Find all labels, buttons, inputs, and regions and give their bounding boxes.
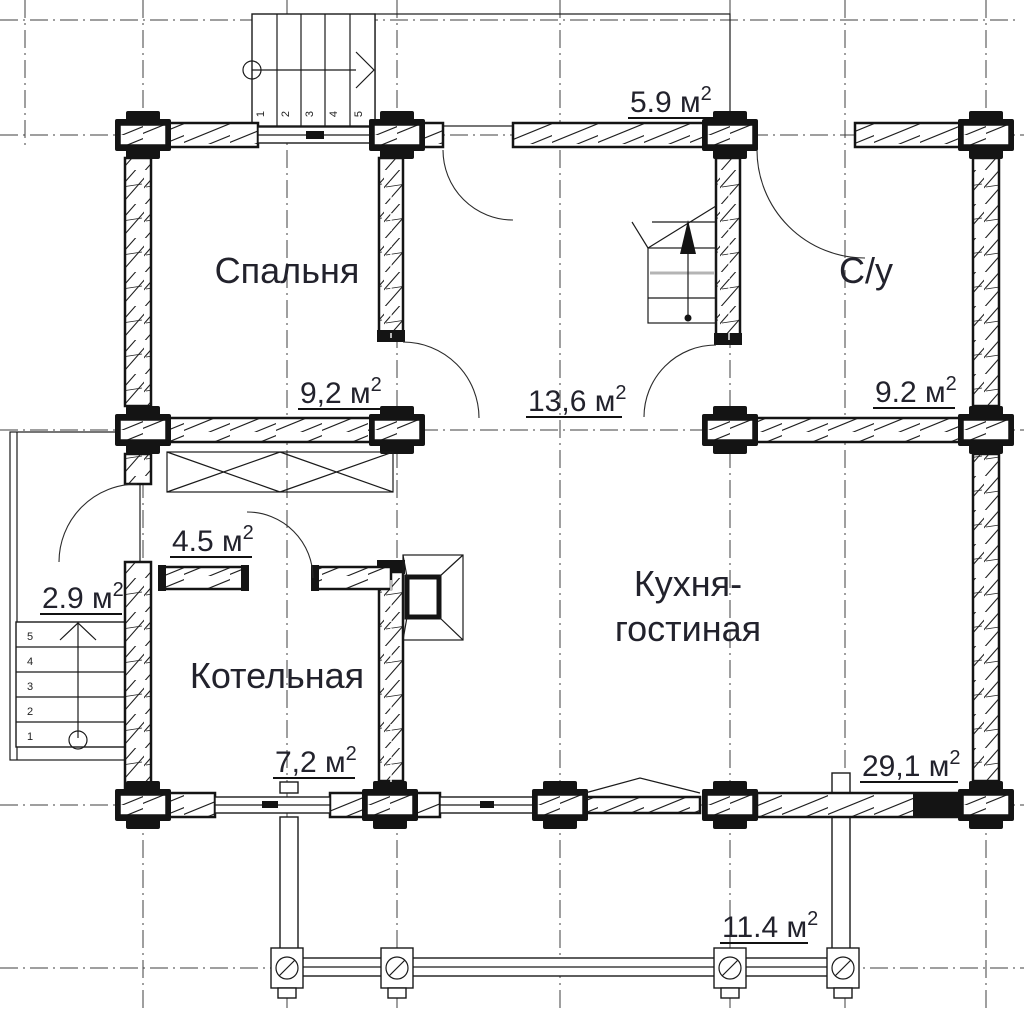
area-corridor: 4.5 м2 [170,522,254,558]
boiler-window [215,797,330,813]
svg-text:4.5 м2: 4.5 м2 [172,522,254,558]
bathroom-label: С/у [839,250,893,291]
bedroom-label: Спальня [215,250,360,291]
step-number: 1 [255,111,267,117]
hall-window [258,127,370,143]
staircase-left: 5 4 3 2 1 [16,622,135,749]
step-number: 3 [304,111,316,117]
step-number: 2 [27,706,33,718]
svg-text:11.4 м2: 11.4 м2 [722,908,818,944]
area-kitchen-living: 29,1 м2 [860,747,960,783]
step-number: 5 [353,111,365,117]
step-number: 2 [280,111,292,117]
area-boiler-room: 7,2 м2 [273,743,357,779]
svg-text:5.9 м2: 5.9 м2 [630,83,712,119]
step-number: 4 [328,111,340,117]
svg-text:29,1 м2: 29,1 м2 [862,747,960,783]
floor-plan-drawing: 1 2 3 4 5 5 4 3 2 1 [0,0,1024,1012]
area-bathroom: 9.2 м2 [873,373,957,409]
area-bedroom: 9,2 м2 [298,374,382,410]
svg-text:9,2 м2: 9,2 м2 [300,374,382,410]
bathroom-partition-wall [714,158,742,345]
boiler-room-label: Котельная [190,655,364,696]
kitchen-living-label-line2: гостиная [615,608,761,649]
area-hall: 13,6 м2 [526,382,626,418]
svg-text:7,2 м2: 7,2 м2 [275,743,357,779]
area-side-landing: 2.9 м2 [40,579,124,615]
boiler-partition-wall [377,560,405,781]
svg-text:13,6 м2: 13,6 м2 [528,382,626,418]
right-wall [973,158,999,781]
step-number: 4 [27,656,33,668]
staircase-top: 1 2 3 4 5 [243,14,375,126]
left-wall [125,158,151,793]
kitchen-window [440,797,536,813]
svg-text:2.9 м2: 2.9 м2 [42,579,124,615]
step-number: 3 [27,681,33,693]
kitchen-living-label-line1: Кухня- [634,563,742,604]
svg-text:9.2 м2: 9.2 м2 [875,373,957,409]
step-number: 1 [27,731,33,743]
step-number: 5 [27,631,33,643]
area-terrace: 11.4 м2 [720,908,818,944]
